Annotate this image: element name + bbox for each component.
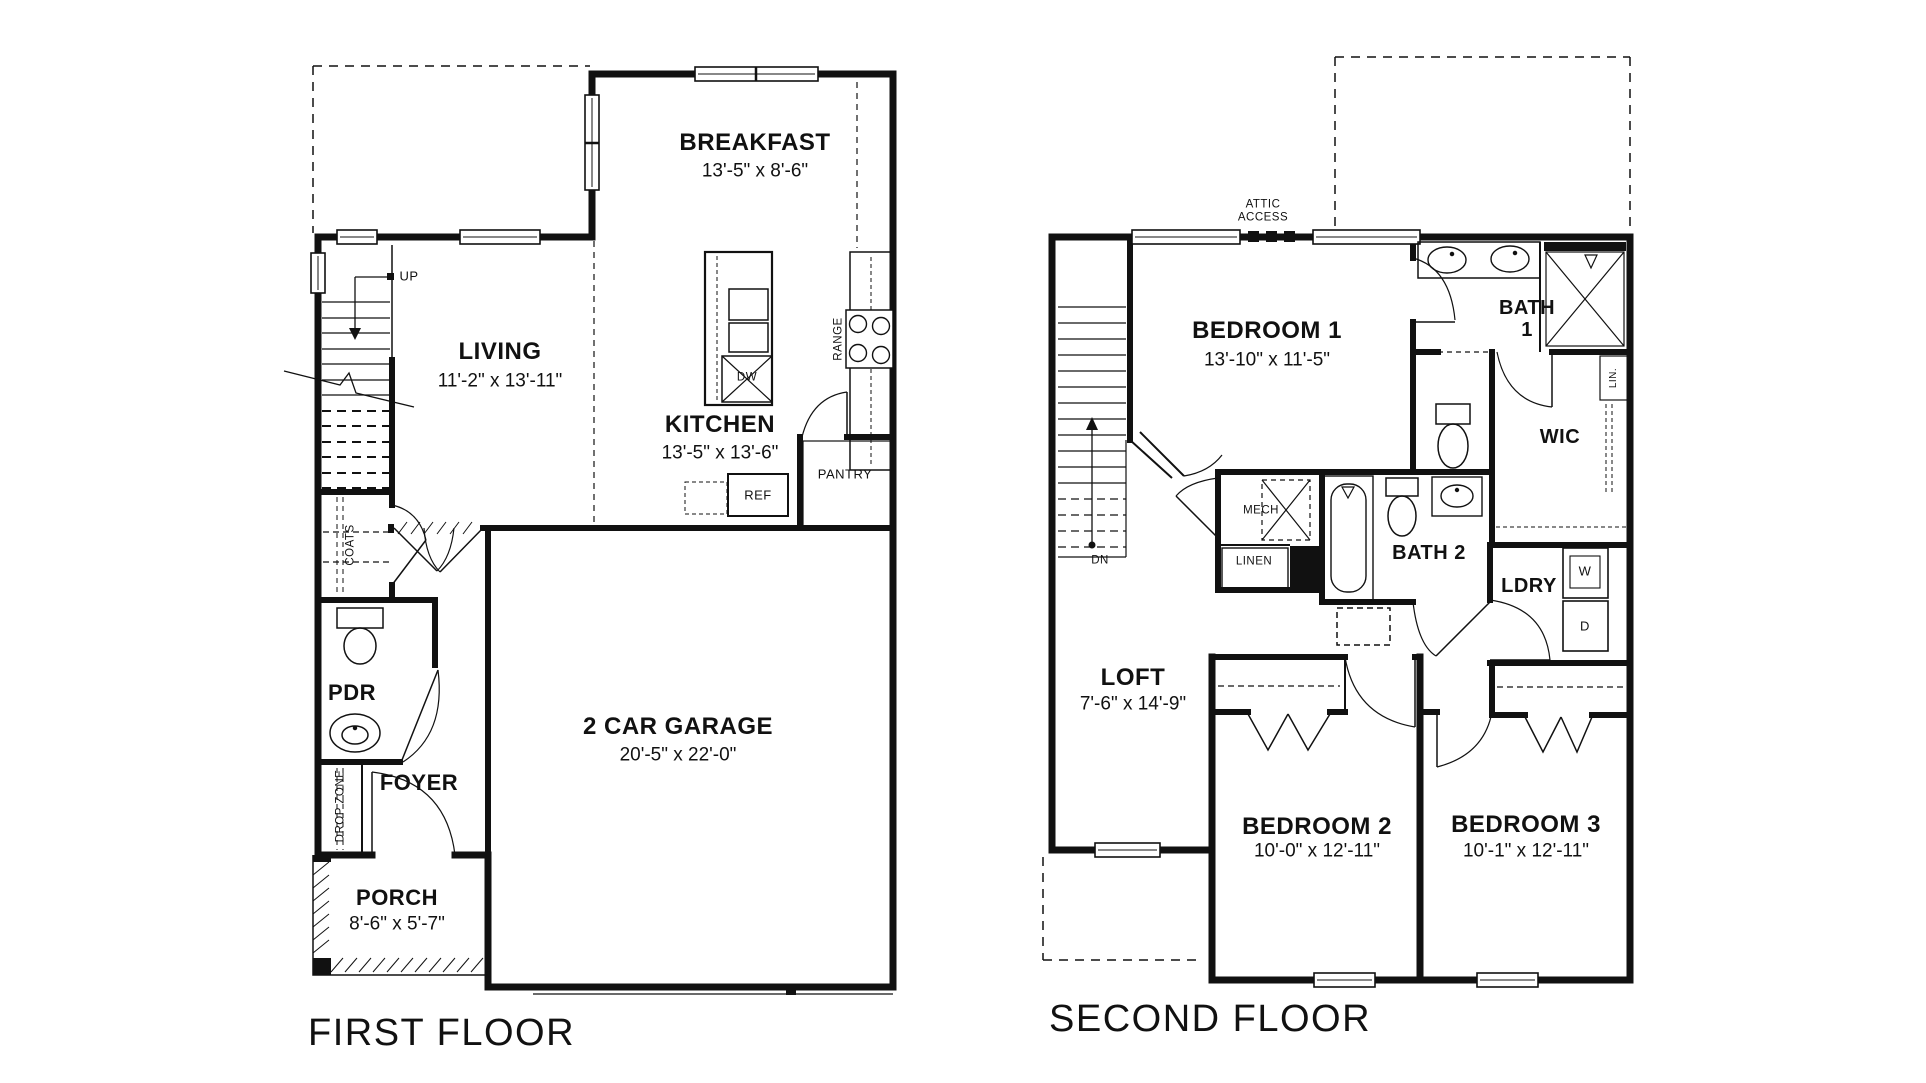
ff-pantry [802, 392, 891, 526]
sf-bath2-tub [1324, 476, 1373, 600]
floorplan-linework [0, 0, 1926, 1083]
second-floor-title: SECOND FLOOR [1049, 1000, 1371, 1038]
label-dn: DN [1091, 555, 1109, 567]
sf-attic-access-marks [1248, 231, 1295, 242]
range-icon [846, 310, 893, 368]
label-attic-line1: ATTIC [1246, 199, 1281, 211]
label-lin: LIN. [1609, 368, 1619, 388]
room-label-kitchen: KITCHEN [665, 413, 775, 437]
sf-linen-closet [1222, 548, 1288, 588]
label-dryer: D [1580, 620, 1590, 633]
room-label-bedroom2: BEDROOM 2 [1242, 815, 1392, 839]
room-label-ldry: LDRY [1501, 576, 1557, 596]
label-coats: COATS [345, 524, 357, 565]
ff-pdr-sink [330, 714, 380, 752]
room-dims-garage: 20'-5" x 22'-0" [620, 746, 737, 765]
label-up: UP [399, 270, 418, 283]
room-label-bedroom3: BEDROOM 3 [1451, 813, 1601, 837]
sf-bath2-toilet [1386, 478, 1418, 536]
sf-bath2-sink [1432, 477, 1482, 516]
room-dims-bedroom3: 10'-1" x 12'-11" [1463, 842, 1589, 861]
sf-bath1-vanity [1418, 242, 1540, 278]
sf-wall-mass [1290, 546, 1322, 592]
label-ref: REF [744, 489, 772, 502]
sf-stairs [1058, 307, 1172, 557]
room-label-foyer: FOYER [380, 772, 458, 794]
room-label-breakfast: BREAKFAST [679, 131, 830, 155]
first-floor-title: FIRST FLOOR [308, 1014, 575, 1052]
room-label-porch: PORCH [356, 887, 438, 909]
room-dims-bedroom1: 13'-10" x 11'-5" [1204, 351, 1330, 370]
label-linen: LINEN [1236, 556, 1272, 568]
label-attic-line2: ACCESS [1238, 212, 1288, 224]
ff-doors [372, 505, 483, 855]
label-mech: MECH [1243, 505, 1279, 517]
label-pantry: PANTRY [818, 468, 873, 481]
label-drop-zone: DROP ZONE [335, 770, 347, 843]
room-label-loft: LOFT [1101, 666, 1166, 690]
sf-bath1-toilet [1436, 404, 1470, 468]
ff-refrigerator [685, 474, 788, 516]
sf-shower-icon [1544, 242, 1626, 346]
room-dims-bedroom2: 10'-0" x 12'-11" [1254, 842, 1380, 861]
room-label-garage: 2 CAR GARAGE [583, 715, 773, 739]
room-dims-kitchen: 13'-5" x 13'-6" [662, 444, 779, 463]
room-label-bedroom1: BEDROOM 1 [1192, 319, 1342, 343]
ff-up-arrow [349, 273, 394, 340]
room-dims-living: 11'-2" x 13'-11" [438, 372, 563, 391]
sf-attic-hatch-box [1337, 608, 1390, 645]
room-dims-loft: 7'-6" x 14'-9" [1080, 695, 1186, 714]
room-label-wic: WIC [1540, 427, 1580, 447]
floorplan-sheet: BREAKFAST 13'-5" x 8'-6" LIVING 11'-2" x… [0, 0, 1926, 1083]
room-label-living: LIVING [458, 340, 541, 364]
ff-pdr-toilet [337, 608, 383, 664]
label-dw: DW [737, 372, 757, 384]
first-floor-plan [284, 66, 893, 995]
ff-dashed-rooflines [313, 66, 590, 233]
room-label-pdr: PDR [328, 682, 376, 704]
room-label-bath1: BATH [1499, 298, 1555, 318]
room-label-bath1-number: 1 [1521, 320, 1533, 340]
label-range: RANGE [833, 317, 845, 360]
room-label-bath2: BATH 2 [1392, 543, 1466, 563]
room-dims-breakfast: 13'-5" x 8'-6" [702, 162, 808, 181]
label-washer: W [1579, 565, 1592, 578]
room-dims-porch: 8'-6" x 5'-7" [349, 915, 445, 934]
